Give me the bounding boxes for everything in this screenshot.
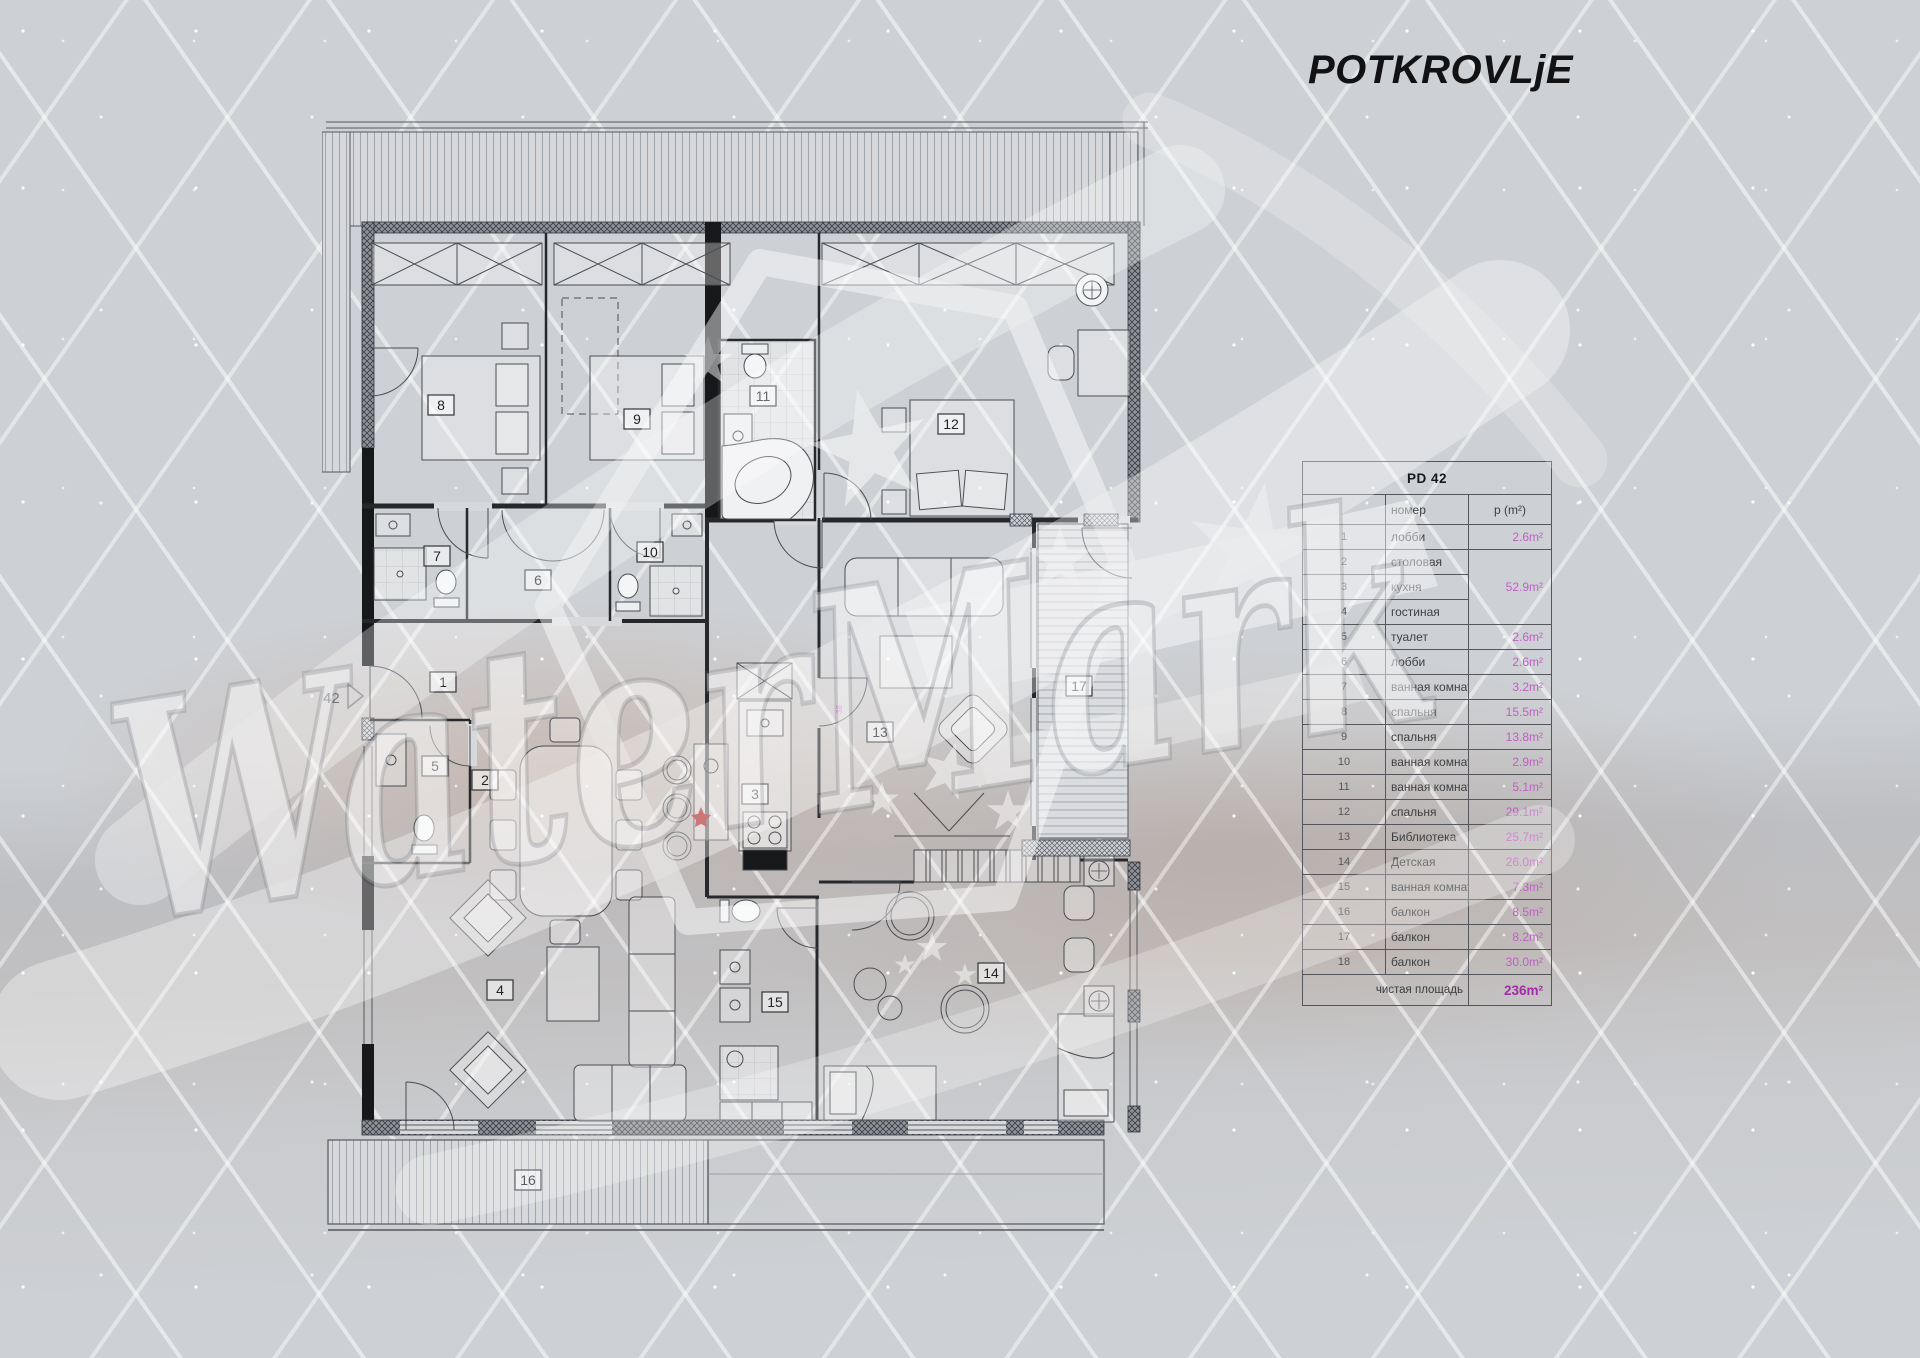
svg-text:12: 12 [943, 416, 959, 432]
tv-icon [894, 793, 1010, 836]
table-title-row: PD 42 [1303, 462, 1552, 495]
toilet-icon [742, 344, 768, 378]
table-row: 8спальня15.5m² [1303, 700, 1552, 725]
chair-icon [1064, 886, 1094, 920]
sofa-icon [845, 558, 1003, 616]
bedroom-8 [372, 243, 542, 494]
bathroom-10 [616, 514, 702, 616]
svg-text:17: 17 [1071, 678, 1087, 694]
col-header-area: p (m²) [1469, 495, 1552, 525]
balcony-16 [328, 1140, 1104, 1230]
svg-text:9: 9 [633, 411, 641, 427]
svg-text:14: 14 [983, 965, 999, 981]
table-row: 9спальня13.8m² [1303, 725, 1552, 750]
svg-text:2: 2 [481, 772, 489, 788]
apartment-entry-marker: 42 [323, 684, 363, 708]
ac-unit-icon [1084, 986, 1114, 1016]
toilet-icon [720, 900, 729, 922]
svg-text:5: 5 [431, 758, 439, 774]
armchair-icon [935, 691, 1011, 767]
toilet-icon [618, 574, 638, 598]
bathroom-11 [719, 340, 815, 520]
table-row: 6лобби2.6m² [1303, 650, 1552, 675]
svg-text:16: 16 [520, 1172, 536, 1188]
total-label: чистая площадь [1303, 975, 1469, 1006]
table-row: 12спальня29.1m² [1303, 800, 1552, 825]
svg-text:7: 7 [433, 548, 441, 564]
desk-icon [1078, 330, 1130, 396]
svg-text:8: 8 [437, 397, 445, 413]
chair-icon [1048, 346, 1074, 380]
sink-icon [376, 514, 410, 536]
sink-icon [376, 734, 406, 786]
rug-icon [886, 892, 934, 940]
sink-icon [672, 514, 702, 536]
svg-text:3: 3 [751, 786, 759, 802]
sofa-icon [629, 897, 675, 1067]
corner-bathtub-icon [722, 439, 813, 519]
coffee-table-icon [547, 947, 599, 1021]
table-row: 7ванная комната3.2m² [1303, 675, 1552, 700]
toilet-icon [414, 815, 434, 841]
svg-text:4: 4 [496, 982, 504, 998]
svg-text:15: 15 [767, 994, 783, 1010]
armchair-icon [450, 1032, 526, 1108]
sink-icon [720, 950, 750, 984]
table-row: 5туалет2.6m² [1303, 625, 1552, 650]
table-row: 2столовая52.9m² [1303, 550, 1552, 575]
toilet-5 [376, 734, 437, 854]
chair-icon [1064, 938, 1094, 972]
boiler-icon [1076, 274, 1108, 306]
table-row: 14Детская26.0m² [1303, 850, 1552, 875]
table-total-row: чистая площадь 236m² [1303, 975, 1552, 1006]
childrens-room-14 [824, 856, 1114, 1122]
table-row: 13Библиотека25.7m² [1303, 825, 1552, 850]
ac-unit-icon [1084, 856, 1114, 886]
sink-icon [720, 988, 750, 1022]
kitchen-island [694, 744, 728, 840]
svg-text:11: 11 [756, 388, 771, 404]
total-value: 236m² [1469, 975, 1552, 1006]
kitchen-3 [663, 663, 792, 870]
table-row: 11ванная комната5.1m² [1303, 775, 1552, 800]
table-row: 16балкон8.5m² [1303, 900, 1552, 925]
svg-text:13: 13 [872, 724, 888, 740]
table-row: 15ванная комната7.3m² [1303, 875, 1552, 900]
tall-cabinet [743, 850, 787, 870]
toilet-icon [436, 570, 456, 594]
sofa-icon [574, 1065, 686, 1121]
svg-text:6: 6 [534, 572, 542, 588]
dining-table-icon [520, 746, 612, 916]
floor-plan: 42 38 1 2 3 4 5 6 7 8 9 10 11 12 13 14 1… [322, 118, 1152, 1253]
kitchen-sink-icon [747, 710, 783, 736]
dimension-label: 38 [835, 705, 844, 714]
table-row: 10ванная комната2.9m² [1303, 750, 1552, 775]
coffee-table-icon [880, 636, 952, 688]
svg-text:1: 1 [439, 674, 447, 690]
area-table: PD 42 номер p (m²) 1лобби2.6m² 2столовая… [1302, 461, 1552, 1006]
table-header-row: номер p (m²) [1303, 495, 1552, 525]
page-title: POTKROVLjE [1308, 48, 1628, 93]
svg-text:42: 42 [323, 690, 340, 707]
col-header-room: номер [1386, 495, 1469, 525]
bedroom-12 [822, 243, 1130, 516]
svg-text:10: 10 [642, 544, 658, 560]
table-row: 1лобби2.6m² [1303, 525, 1552, 550]
merged-area-cell: 52.9m² [1469, 550, 1552, 625]
rug-icon [941, 985, 989, 1033]
table-row: 18балкон30.0m² [1303, 950, 1552, 975]
table-row: 17балкон8.2m² [1303, 925, 1552, 950]
